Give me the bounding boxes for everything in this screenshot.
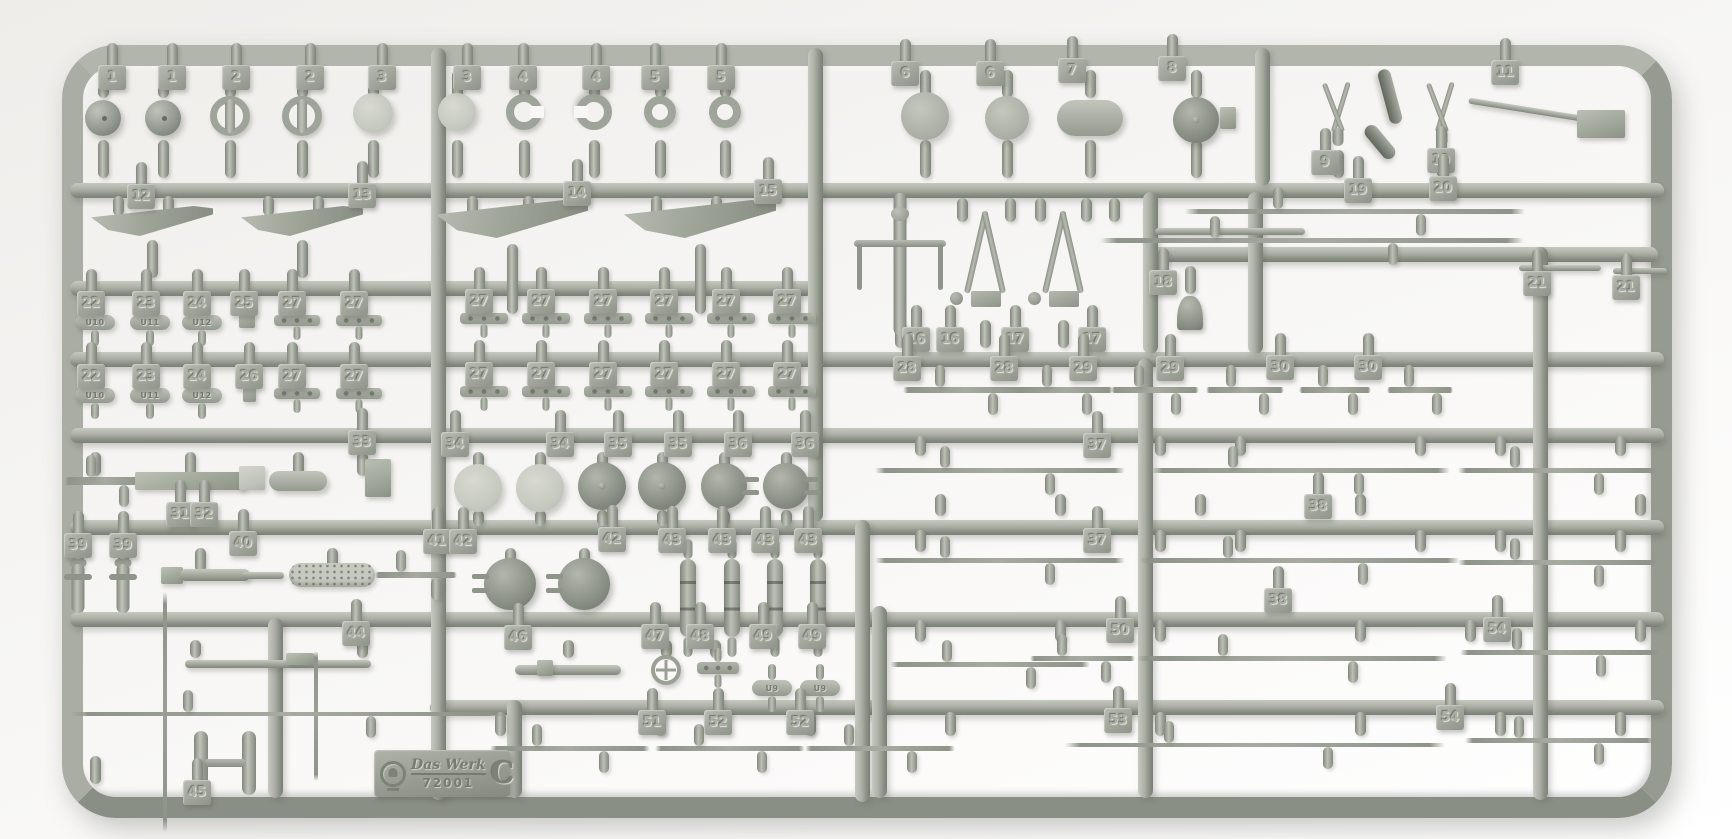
- runner-horizontal: [430, 700, 1664, 715]
- part-number-tag: 27: [773, 362, 801, 387]
- part-number-tag: 27: [278, 291, 306, 316]
- sprue-gate-stub: [915, 436, 926, 456]
- part-tiny: [336, 388, 382, 399]
- part-number-tag: 27: [589, 362, 617, 387]
- part-number-tag: 49: [749, 624, 777, 649]
- brand-plate: Das Werk 72001 C: [374, 750, 510, 797]
- part-number-tag: 32: [190, 502, 218, 527]
- part-number-tag: 27: [712, 362, 740, 387]
- sprue-gate-stub: [695, 244, 706, 314]
- part-marking: U9: [813, 684, 826, 693]
- part-number-tag: 35: [664, 432, 692, 457]
- part-tiny: [274, 388, 320, 399]
- runner-vertical: [268, 618, 283, 798]
- davit-detail: [1059, 210, 1084, 293]
- part-number-tag: 40: [229, 531, 257, 556]
- part-dome: [1173, 97, 1219, 143]
- part-ring: [644, 96, 676, 128]
- part-number-tag: 43: [794, 528, 822, 553]
- part-box: [135, 472, 245, 490]
- part-davit: [948, 205, 1022, 321]
- part-marking: U10: [85, 318, 104, 327]
- part-ring2: [282, 96, 322, 136]
- part-number-tag: 52: [704, 710, 732, 735]
- sprue-gate-stub: [920, 140, 931, 178]
- part-needle: [1100, 238, 1524, 243]
- part-rod: [1155, 228, 1305, 235]
- mast-detail: [938, 244, 943, 290]
- sprue-gate-stub: [98, 140, 109, 178]
- part-mast: [854, 193, 946, 335]
- sprue-photo: U10U11U12U10U11U12U9U9112233445566781191…: [0, 0, 1732, 839]
- part-number-tag: 12: [127, 184, 155, 209]
- part-tiny: [522, 313, 570, 324]
- sprue-gate-stub: [113, 196, 124, 216]
- part-number-tag: 39: [109, 533, 137, 558]
- part-number-tag: 41: [423, 529, 451, 554]
- part-number-tag: 50: [1106, 618, 1134, 643]
- part-needle: [875, 468, 1125, 473]
- part-number-tag: 20: [1429, 176, 1457, 201]
- bollard-detail: [64, 574, 92, 580]
- sprue-gate-stub: [1415, 530, 1426, 552]
- part-tiny: [460, 386, 508, 397]
- part-needle: [1150, 468, 1450, 473]
- part-dome: [578, 462, 626, 510]
- sprue-gate-stub: [1465, 620, 1476, 642]
- part-ovalu: U11: [130, 315, 170, 330]
- part-number-tag: 43: [751, 528, 779, 553]
- sprue-gate-stub: [945, 712, 956, 736]
- sprue-gate-stub: [655, 140, 666, 178]
- part-needle: [65, 477, 145, 485]
- part-needle: [1299, 387, 1371, 393]
- sprue-gate-stub: [1191, 70, 1202, 98]
- part-needle: [1460, 650, 1660, 655]
- sprue-gate-stub: [1495, 436, 1506, 456]
- part-number-tag: 1: [98, 65, 126, 90]
- mast-detail: [854, 240, 946, 247]
- sprue-gate-stub: [1235, 530, 1246, 552]
- part-cshape: [576, 94, 612, 130]
- part-number-tag: 46: [504, 625, 532, 650]
- part-needle: [1458, 560, 1658, 565]
- sprue-gate-stub: [720, 140, 731, 178]
- part-disc: [353, 93, 393, 133]
- part-rod: [185, 660, 371, 668]
- part-number-tag: 42: [598, 527, 626, 552]
- part-number-tag: 34: [441, 432, 469, 457]
- part-box: [239, 466, 265, 490]
- runner-horizontal: [70, 352, 1664, 367]
- davit-detail: [1028, 292, 1041, 305]
- part-number-tag: 42: [449, 529, 477, 554]
- sprue-gate-stub: [1615, 712, 1626, 736]
- part-number-tag: 25: [230, 291, 258, 316]
- sprue-letter: C: [491, 756, 515, 791]
- part-number-tag: 53: [1104, 708, 1132, 733]
- part-box: [1577, 110, 1625, 138]
- part-needle: [1137, 656, 1447, 661]
- part-number-tag: 27: [773, 289, 801, 314]
- kit-number: 72001: [422, 777, 474, 789]
- sprue-gate-stub: [535, 510, 546, 526]
- part-number-tag: 6: [891, 61, 919, 86]
- part-spherebr: [763, 463, 809, 509]
- part-wheel: [651, 655, 681, 685]
- sprue-gate-stub: [980, 320, 991, 348]
- part-number-tag: 27: [527, 362, 555, 387]
- part-dome: [638, 462, 686, 510]
- part-tiny: [697, 662, 739, 674]
- part-number-tag: 54: [1483, 617, 1511, 642]
- mast-detail: [891, 207, 909, 221]
- sprue-gate-stub: [1155, 620, 1166, 642]
- part-needle: [655, 746, 805, 751]
- part-number-tag: 9: [1311, 150, 1339, 175]
- part-spherebr: [558, 558, 610, 610]
- sprue-gate-stub: [589, 140, 600, 178]
- part-disc: [454, 464, 502, 512]
- part-number-tag: 15: [754, 179, 782, 204]
- part-number-tag: 4: [509, 65, 537, 90]
- part-number-tag: 27: [340, 364, 368, 389]
- part-rod: [242, 572, 284, 579]
- runner-vertical: [1255, 48, 1270, 186]
- part-number-tag: 11: [1491, 60, 1519, 85]
- part-number-tag: 30: [1354, 355, 1382, 380]
- part-ball: [145, 100, 181, 136]
- part-number-tag: 29: [1069, 356, 1097, 381]
- hpart-detail: [204, 759, 246, 767]
- part-number-tag: 27: [650, 289, 678, 314]
- runner-horizontal: [1148, 247, 1658, 262]
- runner-vertical: [1248, 192, 1263, 354]
- part-needle: [1140, 558, 1460, 563]
- part-tiny: [645, 386, 693, 397]
- sprue-gate-stub: [1415, 436, 1426, 456]
- part-marking: U9: [765, 684, 778, 693]
- part-number-tag: 2: [296, 65, 324, 90]
- sprue-gate-stub: [190, 640, 201, 658]
- sprue-gate-stub: [1355, 712, 1366, 736]
- part-seg: [724, 559, 740, 637]
- part-number-tag: 3: [453, 65, 481, 90]
- part-oval: [269, 471, 327, 491]
- part-number-tag: 13: [348, 183, 376, 208]
- davit-detail: [1049, 291, 1079, 307]
- part-number-tag: 23: [132, 364, 160, 389]
- sprue-gate-stub: [1185, 266, 1196, 294]
- part-ovalu: U9: [800, 680, 840, 696]
- mast-detail: [857, 244, 862, 290]
- part-number-tag: 1: [158, 65, 186, 90]
- part-tiny: [707, 313, 755, 324]
- part-spherebr: [701, 463, 747, 509]
- part-number-tag: 24: [183, 291, 211, 316]
- sprue-gate-stub: [1635, 494, 1646, 516]
- part-number-tag: 16: [936, 327, 964, 352]
- part-needle: [70, 712, 506, 716]
- part-needle: [1206, 387, 1284, 393]
- part-number-tag: 5: [641, 65, 669, 90]
- sprue-gate-stub: [1355, 620, 1366, 642]
- sprue-gate-stub: [263, 196, 274, 216]
- part-marking: U11: [140, 391, 159, 400]
- sprue-gate-stub: [1085, 70, 1096, 98]
- part-disc: [985, 96, 1029, 140]
- part-bollard: [109, 559, 137, 613]
- part-number-tag: 19: [1344, 178, 1372, 203]
- part-number-tag: 47: [641, 624, 669, 649]
- part-tiny: [645, 313, 693, 324]
- part-number-tag: 51: [638, 710, 666, 735]
- sprue-gate-stub: [1635, 620, 1646, 642]
- part-disc: [516, 464, 564, 512]
- part-ovalu: U10: [75, 315, 115, 330]
- part-number-tag: 4: [582, 65, 610, 90]
- part-marking: U11: [140, 318, 159, 327]
- part-oval: [1057, 100, 1123, 136]
- runner-vertical: [1533, 247, 1548, 800]
- part-cshape: [506, 94, 542, 130]
- part-vneedle: [314, 651, 318, 781]
- part-number-tag: 28: [893, 356, 921, 381]
- part-number-tag: 14: [563, 181, 591, 206]
- part-number-tag: 6: [976, 61, 1004, 86]
- part-number-tag: 27: [340, 291, 368, 316]
- part-box: [537, 660, 553, 676]
- runner-vertical: [431, 48, 446, 800]
- part-needle: [890, 662, 1090, 667]
- part-needle: [1111, 387, 1199, 393]
- part-tiny: [584, 313, 632, 324]
- part-rod: [515, 665, 621, 675]
- sprue-gate-stub: [1002, 140, 1013, 178]
- part-needle: [1018, 387, 1113, 393]
- davit-detail: [981, 210, 1006, 293]
- part-number-tag: 52: [786, 710, 814, 735]
- part-number-tag: 18: [1149, 270, 1177, 295]
- part-needle: [490, 746, 650, 751]
- sprue-gate-stub: [1495, 712, 1506, 736]
- part-number-tag: 27: [278, 364, 306, 389]
- sprue-gate-stub: [781, 510, 792, 526]
- davit-detail: [971, 291, 1001, 307]
- part-needle: [1030, 656, 1135, 661]
- sprue-gate-stub: [452, 140, 463, 178]
- sprue-gate-stub: [519, 140, 530, 178]
- part-needle: [1185, 209, 1525, 214]
- part-number-tag: 22: [77, 291, 105, 316]
- part-number-tag: 3: [368, 65, 396, 90]
- part-marking: U12: [192, 318, 211, 327]
- part-tiny: [274, 315, 320, 326]
- part-number-tag: 37: [1083, 528, 1111, 553]
- sprue-gate-stub: [563, 640, 574, 658]
- part-bollard: [64, 559, 92, 613]
- part-tiny: [707, 386, 755, 397]
- part-tiny: [522, 386, 570, 397]
- sprue-gate-stub: [1058, 320, 1069, 348]
- part-number-tag: 8: [1158, 56, 1186, 81]
- sprue-gate-stub: [507, 244, 518, 314]
- part-needle: [1387, 387, 1453, 393]
- part-number-tag: 38: [1304, 494, 1332, 519]
- part-marking: U10: [85, 391, 104, 400]
- part-needle: [1458, 468, 1658, 473]
- bollard-detail: [72, 564, 85, 613]
- sprue-gate-stub: [1055, 494, 1066, 516]
- part-number-tag: 35: [604, 432, 632, 457]
- part-number-tag: 27: [650, 362, 678, 387]
- sprue-gate-stub: [915, 620, 926, 642]
- part-ovalu: U9: [752, 680, 792, 696]
- brand-name: Das Werk: [411, 758, 486, 775]
- part-tex: [289, 563, 375, 587]
- part-number-tag: 39: [64, 533, 92, 558]
- part-tiny: [460, 313, 508, 324]
- part-needle: [903, 387, 1028, 393]
- part-number-tag: 36: [724, 432, 752, 457]
- sprue-gate-stub: [1195, 494, 1206, 516]
- bollard-detail: [109, 574, 137, 580]
- sprue-gate-stub: [297, 140, 308, 178]
- vee-detail: [1333, 128, 1344, 146]
- part-ovalu: U12: [182, 388, 222, 403]
- part-tiny: [336, 315, 382, 326]
- sprue-gate-stub: [1191, 140, 1202, 178]
- part-number-tag: 27: [465, 289, 493, 314]
- sprue-gate-stub: [90, 756, 101, 784]
- sprue-gate-stub: [297, 240, 308, 278]
- runner-vertical: [872, 606, 887, 798]
- part-number-tag: 43: [658, 528, 686, 553]
- sprue-gate-stub: [1355, 494, 1366, 516]
- part-marking: U12: [192, 391, 211, 400]
- part-disc: [438, 93, 476, 131]
- part-number-tag: 2: [222, 65, 250, 90]
- part-number-tag: 28: [990, 356, 1018, 381]
- das-werk-logo-icon: [380, 761, 406, 787]
- part-number-tag: 22: [77, 364, 105, 389]
- part-bell: [1177, 296, 1203, 330]
- part-davit: [1026, 205, 1100, 321]
- part-disc: [901, 92, 949, 140]
- part-ovalu: U11: [130, 388, 170, 403]
- part-number-tag: 54: [1436, 705, 1464, 730]
- part-needle: [1065, 743, 1445, 747]
- part-ball: [85, 100, 121, 136]
- part-needle: [805, 746, 955, 751]
- part-number-tag: 38: [1264, 588, 1292, 613]
- sprue-gate-stub: [368, 140, 379, 178]
- part-number-tag: 49: [798, 624, 826, 649]
- part-box: [365, 459, 391, 497]
- part-number-tag: 29: [1156, 356, 1184, 381]
- part-number-tag: 34: [546, 432, 574, 457]
- part-tiny: [768, 313, 816, 324]
- part-number-tag: 27: [527, 289, 555, 314]
- sprue-gate-stub: [1615, 530, 1626, 552]
- part-needle: [1465, 738, 1655, 743]
- part-needle: [375, 572, 457, 578]
- part-box: [1220, 107, 1236, 129]
- part-number-tag: 44: [342, 621, 370, 646]
- sprue-gate-stub: [915, 530, 926, 552]
- part-number-tag: 27: [712, 289, 740, 314]
- part-number-tag: 5: [707, 65, 735, 90]
- part-number-tag: 21: [1523, 271, 1551, 296]
- part-number-tag: 7: [1058, 58, 1086, 83]
- part-number-tag: 48: [686, 624, 714, 649]
- part-number-tag: 27: [465, 362, 493, 387]
- part-number-tag: 26: [235, 364, 263, 389]
- part-number-tag: 33: [348, 430, 376, 455]
- part-needle: [875, 558, 1125, 563]
- sprue-gate-stub: [1155, 530, 1166, 552]
- runner-vertical: [855, 520, 870, 802]
- part-number-tag: 37: [1083, 433, 1111, 458]
- part-number-tag: 23: [132, 291, 160, 316]
- part-number-tag: 45: [183, 780, 211, 805]
- part-tiny: [584, 386, 632, 397]
- bollard-detail: [117, 564, 130, 613]
- sprue-gate-stub: [1109, 198, 1120, 222]
- part-rod: [180, 569, 250, 581]
- sprue-gate-stub: [1085, 140, 1096, 178]
- part-number-tag: 24: [183, 364, 211, 389]
- part-number-tag: 43: [708, 528, 736, 553]
- part-ring: [709, 96, 741, 128]
- sprue-gate-stub: [225, 140, 236, 178]
- sprue-gate-stub: [1495, 530, 1506, 552]
- sprue-gate-stub: [1615, 436, 1626, 456]
- runner-vertical: [1138, 358, 1153, 798]
- sprue-gate-stub: [935, 494, 946, 516]
- part-box: [286, 653, 314, 665]
- part-tiny: [768, 386, 816, 397]
- sprue-gate-stub: [158, 140, 169, 178]
- part-number-tag: 27: [589, 289, 617, 314]
- part-number-tag: 36: [791, 432, 819, 457]
- part-ovalu: U10: [75, 388, 115, 403]
- part-spherebr: [484, 558, 536, 610]
- sprue-gate-stub: [1155, 436, 1166, 456]
- part-ovalu: U12: [182, 315, 222, 330]
- sprue-gate-stub: [473, 510, 484, 526]
- brand-text: Das Werk 72001: [411, 758, 486, 789]
- part-number-tag: 30: [1266, 355, 1294, 380]
- davit-detail: [950, 292, 963, 305]
- part-number-tag: 21: [1612, 275, 1640, 300]
- part-ring2: [210, 96, 250, 136]
